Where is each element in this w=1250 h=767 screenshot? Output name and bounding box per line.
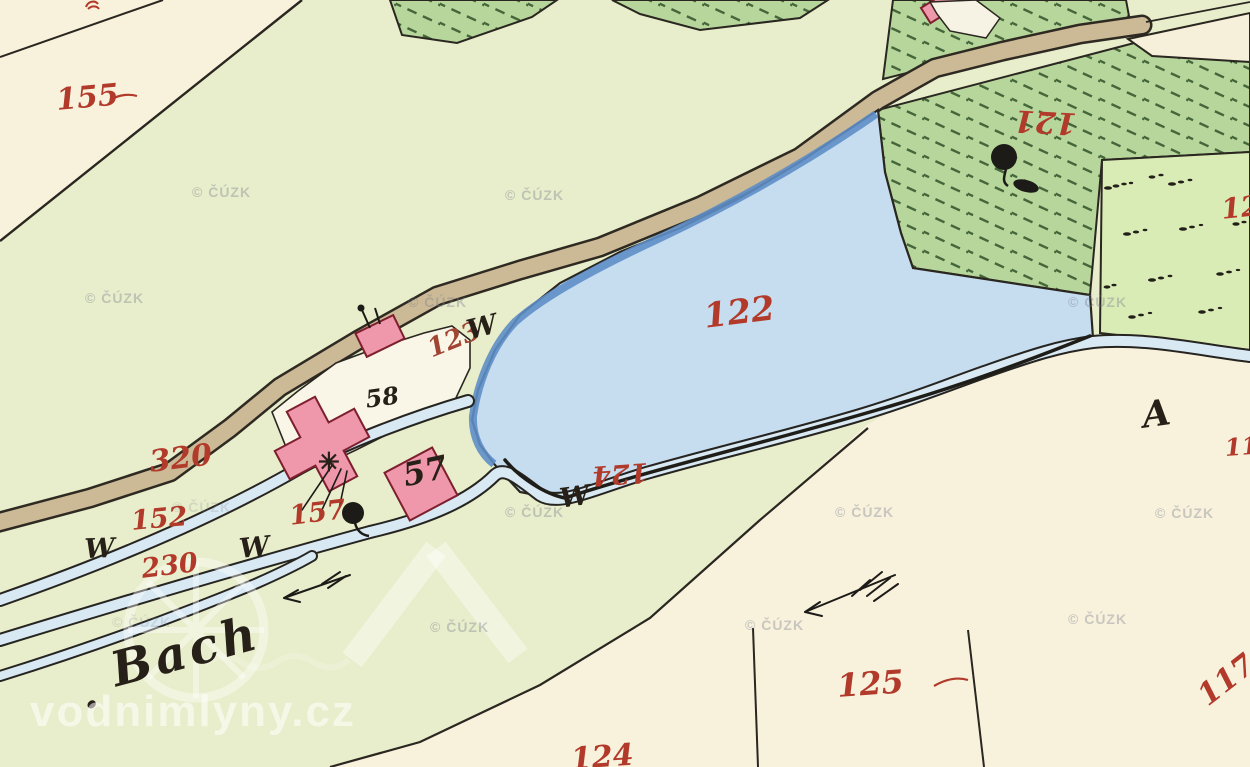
meadow-symbol-w-2: W [84, 535, 115, 563]
cuzk-watermark: © ČÚZK [1068, 295, 1127, 309]
cuzk-watermark: © ČÚZK [408, 295, 467, 309]
cuzk-watermark: © ČÚZK [505, 505, 564, 519]
map-labels: 155 121 122 123 124 320 152 230 157 125 … [0, 0, 1250, 767]
cuzk-watermark: © ČÚZK [85, 291, 144, 305]
parcel-number-124-bottom: 124 [570, 741, 635, 767]
parcel-number-157: 157 [288, 496, 347, 530]
section-letter-a: A [1140, 394, 1173, 434]
cuzk-watermark: © ČÚZK [1068, 612, 1127, 626]
cuzk-watermark: © ČÚZK [505, 188, 564, 202]
parcel-number-12-partial: 12 [1220, 192, 1250, 224]
parcel-number-121: 121 [1013, 104, 1077, 137]
parcel-number-230: 230 [140, 549, 199, 583]
meadow-symbol-w-1: W [464, 311, 500, 345]
cuzk-watermark: © ČÚZK [172, 500, 231, 514]
meadow-symbol-w-3: W [238, 533, 271, 563]
cuzk-watermark: © ČÚZK [1155, 506, 1214, 520]
parcel-number-117-partial: 117 [1193, 649, 1250, 711]
cuzk-watermark: © ČÚZK [835, 505, 894, 519]
parcel-number-124: 124 [591, 458, 649, 489]
parcel-number-320: 320 [148, 440, 214, 477]
parcel-number-125: 125 [836, 665, 905, 702]
cadastral-map[interactable]: 155 121 122 123 124 320 152 230 157 125 … [0, 0, 1250, 767]
chapel-star-symbol: ✳ [318, 450, 340, 476]
cuzk-watermark: © ČÚZK [430, 620, 489, 634]
cuzk-watermark: © ČÚZK [112, 615, 171, 629]
house-number-57: 57 [400, 451, 450, 492]
house-number-58: 58 [364, 383, 400, 411]
parcel-number-122: 122 [702, 291, 777, 333]
parcel-number-155: 155 [55, 81, 120, 116]
cuzk-watermark: © ČÚZK [745, 618, 804, 632]
parcel-number-11-partial: 11 [1224, 434, 1250, 460]
vodnimlyny-watermark: vodnimlyny.cz [30, 690, 356, 734]
cuzk-watermark: © ČÚZK [192, 185, 251, 199]
